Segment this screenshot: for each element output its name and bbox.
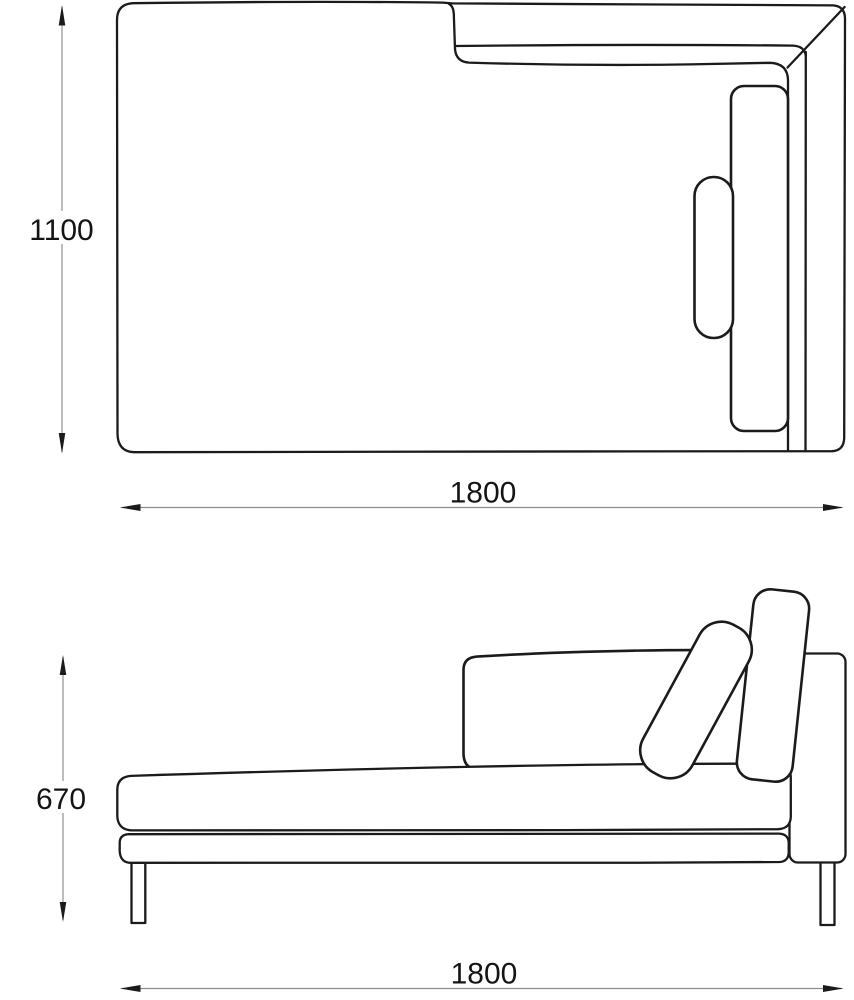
- side-view-height-dimension: 670: [32, 655, 91, 922]
- furniture-dimension-drawing: 1100 1800 670: [0, 0, 854, 1000]
- side-view-right-leg: [821, 858, 835, 925]
- arrow-right-icon: [823, 504, 844, 511]
- arrow-down-icon: [60, 902, 67, 922]
- side-view-seat-base: [120, 834, 789, 864]
- top-view-pillow: [695, 177, 734, 338]
- arrow-down-icon: [59, 433, 66, 454]
- arrow-left-icon: [120, 504, 141, 511]
- top-view-depth-dimension: 1100: [29, 5, 94, 454]
- top-view: [117, 2, 845, 452]
- arrow-up-icon: [60, 655, 67, 675]
- top-view-depth-label: 1100: [29, 214, 94, 247]
- arrow-up-icon: [59, 5, 66, 26]
- top-view-backrest-cushion: [731, 86, 788, 431]
- side-view-height-label: 670: [36, 783, 86, 816]
- top-view-width-dimension: 1800: [120, 477, 844, 512]
- side-view: [117, 588, 845, 925]
- arrow-left-icon: [120, 985, 141, 992]
- drawing-canvas: 1100 1800 670: [0, 0, 854, 1000]
- arrow-right-icon: [823, 985, 844, 992]
- side-view-width-label: 1800: [451, 958, 518, 991]
- side-view-width-dimension: 1800: [120, 958, 844, 993]
- top-view-width-label: 1800: [450, 477, 517, 510]
- side-view-seat-mattress: [117, 764, 791, 831]
- side-view-left-leg: [132, 858, 146, 923]
